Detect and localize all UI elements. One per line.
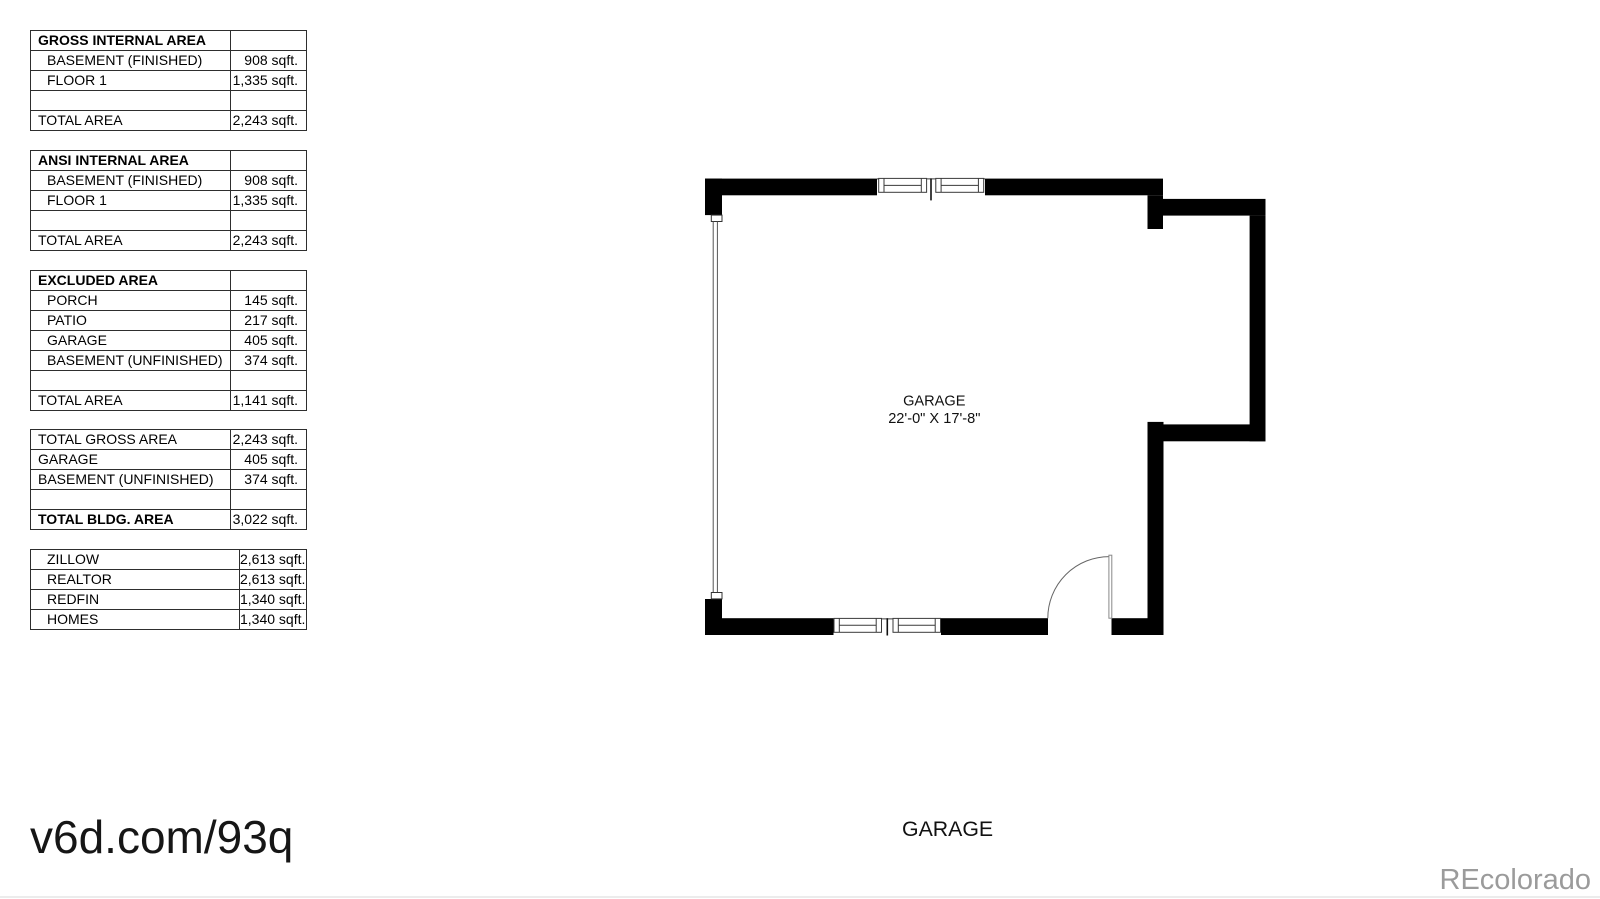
svg-text:22'-0" X 17'-8": 22'-0" X 17'-8" [888,411,980,427]
svg-text:GARAGE: GARAGE [903,394,966,410]
